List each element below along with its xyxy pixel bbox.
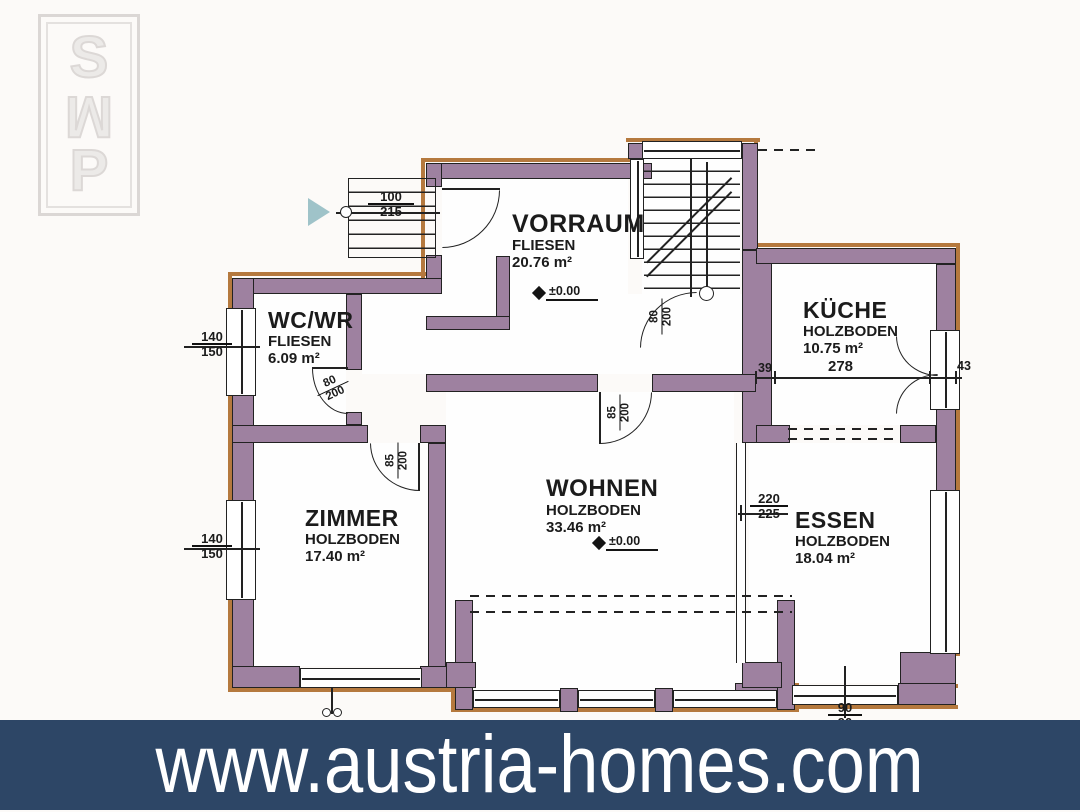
exterior-wall	[446, 662, 476, 688]
window	[300, 668, 422, 688]
dimension-line	[756, 377, 962, 379]
marker-circle	[322, 708, 331, 717]
floor-plan: 100215 140150 140150 80200 85200 80200 8…	[0, 0, 1080, 810]
exterior-wall	[455, 600, 473, 710]
interior-wall	[232, 425, 368, 443]
dashed-beam-line	[470, 595, 792, 597]
dim-kueche-offset: 39	[758, 361, 772, 375]
interior-wall	[346, 412, 362, 425]
exterior-wall	[936, 408, 956, 492]
interior-wall	[742, 250, 772, 443]
exterior-wall	[232, 666, 300, 688]
stair-walk-start-circle	[699, 286, 714, 301]
marker-circle	[333, 708, 342, 717]
exterior-wall	[232, 278, 442, 294]
north-arrow-icon	[308, 198, 330, 226]
exterior-wall	[936, 264, 956, 332]
room-label-wohnen: WOHNEN HOLZBODEN 33.46 m²	[546, 476, 658, 536]
dashed-opening-line	[788, 438, 900, 440]
dim-stair-door: 80200	[649, 299, 674, 335]
dimension-tick	[774, 371, 776, 384]
interior-wall	[900, 425, 936, 443]
exterior-wall	[756, 248, 956, 264]
exterior-wall	[655, 688, 673, 712]
stair-treads	[644, 159, 740, 297]
dim-zimmer-door: 85200	[385, 443, 410, 479]
outer-outline	[756, 243, 960, 247]
dimension-tick	[929, 371, 931, 384]
exterior-wall	[560, 688, 578, 712]
room-label-wcwr: WC/WR FLIESEN 6.09 m²	[268, 308, 354, 367]
level-diamond-icon	[532, 286, 546, 300]
exterior-wall	[232, 278, 254, 310]
interior-wall	[420, 425, 446, 443]
outer-outline	[451, 708, 799, 712]
dim-entry-door: 100215	[368, 190, 414, 218]
room-label-essen: ESSEN HOLZBODEN 18.04 m²	[795, 508, 890, 567]
website-banner: www.austria-homes.com	[0, 720, 1080, 810]
room-label-kueche: KÜCHE HOLZBODEN 10.75 m²	[803, 298, 898, 357]
interior-wall	[426, 374, 598, 392]
dim-kueche-width: 278	[828, 358, 853, 375]
window	[578, 690, 655, 708]
room-area-bay	[475, 614, 775, 690]
level-marker: ±0.00	[594, 534, 658, 551]
stair-walk-line	[706, 162, 708, 288]
exterior-wall	[742, 662, 782, 688]
window	[473, 690, 560, 708]
exterior-wall	[898, 683, 956, 705]
outer-outline	[228, 272, 430, 276]
exterior-wall	[742, 143, 758, 250]
dim-wohnen-door: 85200	[607, 395, 632, 431]
dim-zimmer-window: 140150	[192, 532, 232, 560]
window	[673, 690, 777, 708]
outer-outline	[228, 688, 459, 692]
door-leaf	[418, 443, 420, 491]
stair-stringer-line	[690, 159, 692, 297]
exterior-wall	[232, 394, 254, 504]
window	[642, 141, 742, 159]
partition-wall	[736, 443, 746, 663]
interior-wall	[428, 443, 446, 688]
dimension-tick	[755, 371, 757, 384]
dim-kueche-door: 43	[957, 359, 971, 373]
level-marker: ±0.00	[534, 284, 598, 301]
level-diamond-icon	[592, 536, 606, 550]
dashed-line	[758, 149, 816, 151]
exterior-wall	[900, 652, 956, 684]
dashed-opening-line	[788, 428, 900, 430]
dashed-beam-line	[470, 611, 792, 613]
window	[930, 490, 960, 654]
exterior-wall	[426, 255, 442, 280]
room-label-zimmer: ZIMMER HOLZBODEN 17.40 m²	[305, 506, 400, 565]
interior-wall	[426, 316, 510, 330]
room-label-vorraum: VORRAUM FLIESEN 20.76 m²	[512, 210, 645, 272]
dimension-tick	[740, 505, 742, 521]
dim-wc-window: 140150	[192, 330, 232, 358]
entry-post-circle	[340, 206, 352, 218]
interior-wall	[652, 374, 756, 392]
exterior-wall	[426, 163, 652, 179]
interior-wall	[756, 425, 790, 443]
website-url: www.austria-homes.com	[156, 718, 924, 812]
outer-outline	[421, 158, 657, 162]
dim-essen-opening: 220225	[750, 492, 788, 520]
